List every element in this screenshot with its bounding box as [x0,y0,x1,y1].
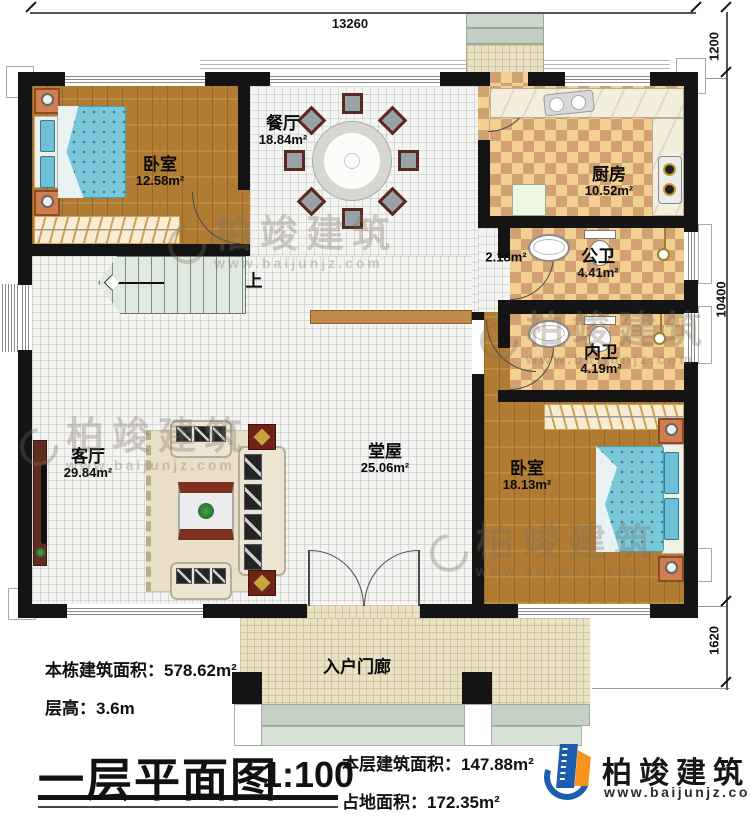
sink-bowl [570,94,586,110]
company-website: www.baijunjz.com [604,784,750,800]
window [686,232,696,280]
wall [498,300,684,314]
logo-building-windows [559,748,567,784]
nightstand [34,88,60,114]
wall [203,604,307,618]
window [67,606,203,616]
dimension-top-width: 13260 [320,16,380,31]
shower-head-icon [657,248,670,261]
dimension-tick [25,1,36,12]
window [20,285,30,350]
dining-table-center [344,153,360,169]
dimension-tick [690,1,701,12]
table-ornament [254,575,271,592]
dimension-back-depth: 1200 [707,17,722,77]
staircase [98,256,246,314]
nightstand [658,418,684,444]
wall [528,72,565,86]
wall [238,86,250,190]
window [686,313,696,362]
pillow [664,452,679,494]
cushion [176,426,192,442]
coffee-table [178,482,234,540]
porch-step [250,726,582,746]
stove [658,156,682,204]
room-label-kitchen: 厨房 10.52m² [585,165,633,199]
shower-arm [660,314,662,334]
lamp-icon [41,195,54,208]
wall [478,216,684,228]
toilet-tank [584,316,616,325]
window-sill [698,306,712,364]
room-label-bedroom1: 卧室 12.58m² [136,155,184,189]
window-sill [698,224,712,284]
floorplan-canvas: 13260 1200 10400 1620 [0,0,750,816]
dimension-connector [592,688,730,689]
back-door-floor [490,72,528,86]
burner-icon [663,183,676,196]
lamp-icon [665,423,678,436]
dining-chair [284,150,305,171]
dining-chair [342,93,363,114]
porch-step [242,704,590,726]
side-table [248,424,276,450]
logo-building-blue [556,744,578,788]
porch-column-base [464,704,492,746]
window [518,606,650,616]
cushion [176,568,192,584]
back-porch-step [466,12,544,28]
porch-column [462,672,492,704]
cushion [244,454,262,480]
cushion [212,568,226,584]
cushion [244,484,262,510]
title-underline-thick [38,795,338,800]
sink-bowl [548,97,564,113]
porch-door-floor [307,605,420,618]
title-underline-thin [38,806,338,808]
wall [440,72,490,86]
shower-head-icon [653,332,666,345]
lamp-icon [665,561,678,574]
back-porch-step [466,28,544,44]
floor-height: 层高：3.6m [45,694,135,719]
dimension-tick [720,1,731,12]
footprint-area: 占地面积：172.35m² [342,788,500,813]
plant-icon [36,548,45,557]
room-label-living: 客厅 29.84m² [64,447,112,481]
tv [41,464,47,544]
burner-icon [663,163,676,176]
pillow [40,156,55,188]
wall [18,244,250,256]
dimension-porch-depth: 1620 [707,611,722,671]
dining-chair [342,208,363,229]
wall [420,604,518,618]
room-label-dining: 餐厅 18.84m² [259,114,307,148]
cushion [194,426,210,442]
wall [18,350,32,604]
wall [684,280,698,313]
building-total-area: 本栋建筑面积：578.62m² [45,656,237,681]
door-leaf [418,550,420,606]
table-ornament [254,429,271,446]
porch-column-base [234,704,262,746]
eave-lines [200,60,670,70]
bathroom-sink [528,320,570,348]
window [565,74,650,84]
floor-area: 本层建筑面积：147.88m² [342,750,534,775]
wall [650,604,698,618]
cushion [212,426,226,442]
wall [472,312,484,320]
plan-title: 一层平面图 [38,744,278,810]
stairs-up-label: 上 [246,271,263,290]
wall [498,390,684,402]
right-dimension-line [726,12,728,690]
nightstand [658,556,684,582]
company-logo-icon [544,742,596,802]
wall [684,72,698,232]
sink-basin [533,239,565,255]
nightstand [34,190,60,216]
toilet-tank [584,230,616,239]
back-porch-landing [466,44,544,74]
pillow [40,120,55,152]
wall [18,604,67,618]
pillow [664,498,679,540]
room-label-hall: 堂屋 25.06m² [361,442,409,476]
wall [478,140,490,216]
cushion [244,514,262,540]
window [270,74,440,84]
porch-floor [240,618,590,704]
bathroom-sink [528,234,570,262]
lamp-icon [41,93,54,106]
dining-chair [398,150,419,171]
plan-scale: 1:100 [262,754,354,796]
window-sill [0,284,18,352]
cushion [244,544,262,570]
room-label-bedroom2: 卧室 18.13m² [503,459,551,493]
hallway-area-label: 2.18m² [485,251,526,266]
wall [205,72,270,86]
cushion [194,568,210,584]
threshold-beam [310,310,472,324]
sink-basin [533,325,565,341]
dimension-connector [698,606,728,607]
refrigerator [512,184,546,216]
top-dimension-line [30,12,696,14]
dimension-right-height: 10400 [714,270,729,330]
wall [684,362,698,604]
shower-arm [664,228,666,250]
porch-column [232,672,262,704]
room-label-inner-bath: 内卫 4.19m² [580,343,621,377]
room-label-public-bath: 公卫 4.41m² [577,247,618,281]
side-table [248,570,276,596]
room-label-porch: 入户门廊 [323,657,391,676]
door-leaf [308,550,310,606]
wall [472,374,484,604]
stair-direction-line [118,282,164,284]
plant-icon [198,503,214,519]
window [65,74,205,84]
wardrobe [34,216,180,244]
